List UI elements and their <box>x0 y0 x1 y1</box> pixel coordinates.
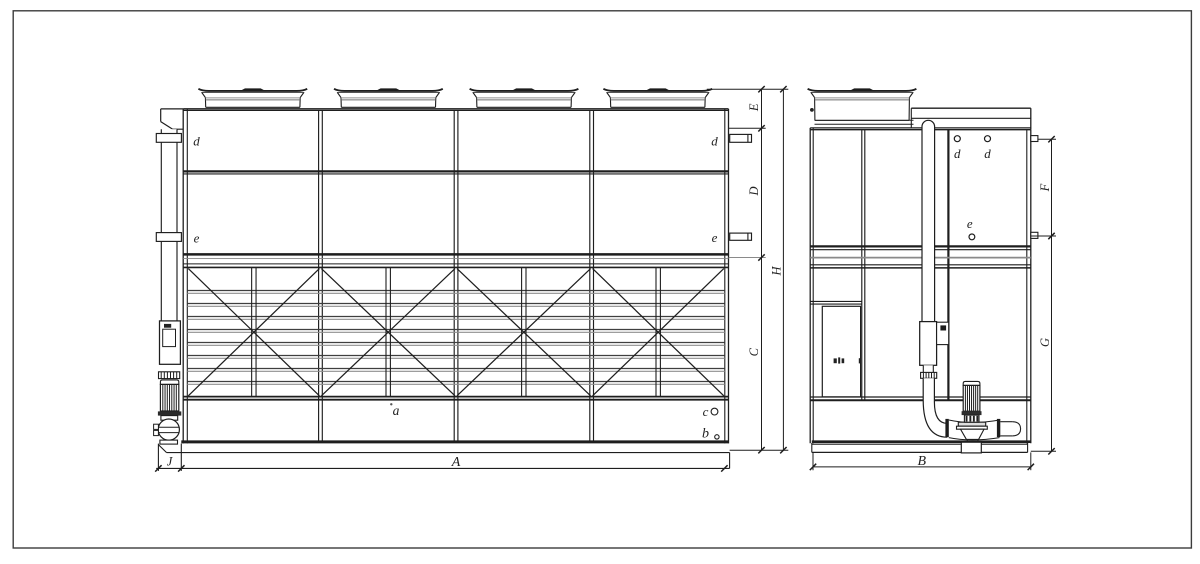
svg-text:e: e <box>194 230 200 245</box>
svg-text:C: C <box>747 347 761 356</box>
svg-text:A: A <box>451 455 461 470</box>
svg-text:B: B <box>918 454 927 469</box>
svg-text:H: H <box>770 266 784 277</box>
svg-text:c: c <box>703 404 709 419</box>
svg-text:G: G <box>1038 338 1052 347</box>
svg-text:b: b <box>702 426 709 441</box>
svg-text:e: e <box>712 230 718 245</box>
svg-text:d: d <box>711 133 718 148</box>
svg-text:a: a <box>393 403 400 418</box>
svg-text:d: d <box>954 146 961 161</box>
svg-text:d: d <box>984 146 991 161</box>
svg-text:D: D <box>747 186 761 196</box>
svg-text:E: E <box>747 103 761 112</box>
svg-text:d: d <box>193 134 200 149</box>
svg-text:J: J <box>167 454 174 468</box>
svg-text:F: F <box>1038 183 1052 192</box>
svg-text:e: e <box>967 216 973 231</box>
